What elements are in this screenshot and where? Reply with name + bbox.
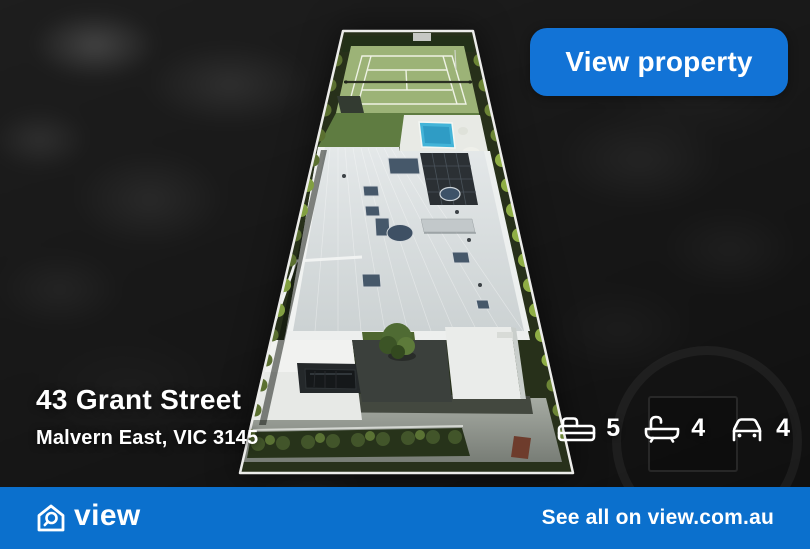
- bed-icon: [556, 414, 597, 444]
- view-logo-text: view: [74, 499, 141, 533]
- cars-count: 4: [776, 414, 790, 443]
- house-magnifier-icon: [34, 501, 68, 535]
- stat-cars: 4: [727, 413, 790, 444]
- swimming-pool: [419, 122, 455, 148]
- property-stats: 5 4 4: [556, 413, 790, 444]
- stat-baths: 4: [642, 413, 705, 444]
- property-card: View property 43 Grant Street Malvern Ea…: [0, 0, 810, 549]
- car-icon: [727, 413, 767, 444]
- stat-beds: 5: [556, 414, 620, 444]
- footer-link[interactable]: See all on view.com.au: [542, 506, 774, 530]
- view-property-button[interactable]: View property: [530, 28, 788, 96]
- view-logo[interactable]: view: [34, 501, 141, 535]
- baths-count: 4: [691, 414, 705, 443]
- beds-count: 5: [606, 414, 620, 443]
- property-address: 43 Grant Street: [36, 384, 258, 416]
- parked-car: [305, 369, 356, 389]
- property-location: Malvern East, VIC 3145: [36, 427, 258, 450]
- view-property-label: View property: [565, 46, 752, 78]
- footer-bar: view See all on view.com.au: [0, 487, 810, 549]
- front-pavilion: [445, 327, 526, 399]
- bath-icon: [642, 413, 682, 444]
- solar-panels: [420, 153, 478, 205]
- tennis-court: [336, 46, 479, 113]
- property-address-block: 43 Grant Street Malvern East, VIC 3145: [36, 384, 258, 450]
